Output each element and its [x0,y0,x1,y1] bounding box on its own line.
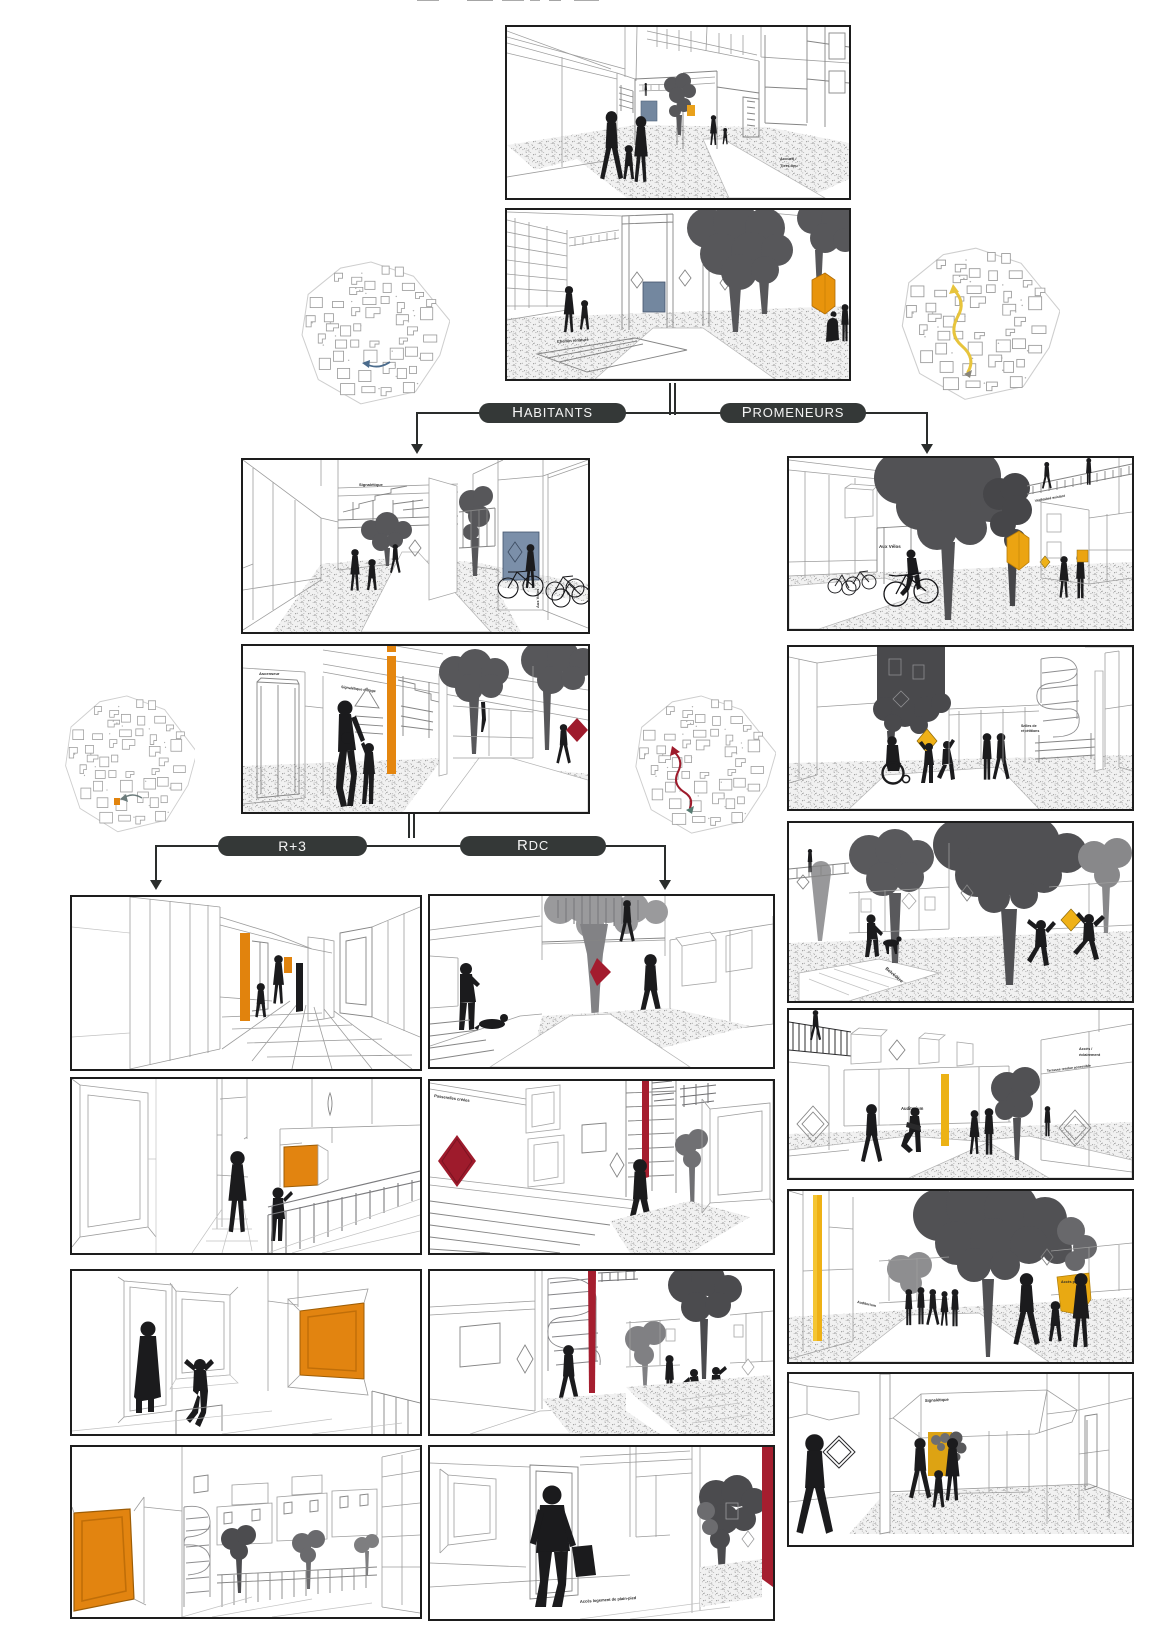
svg-text:Accès logement de plain-pied: Accès logement de plain-pied [580,1595,637,1604]
svg-text:Signalétique: Signalétique [359,482,384,487]
svg-text:Signalétique: Signalétique [925,1397,950,1403]
svg-text:répétitions: répétitions [1021,729,1039,733]
svg-text:Accès /: Accès / [1079,1047,1093,1051]
svg-text:éclairement: éclairement [1079,1053,1101,1057]
svg-text:Aux Vélos: Aux Vélos [535,588,540,608]
svg-text:Accueil /: Accueil / [780,156,797,161]
svg-text:Auditorium: Auditorium [857,1300,877,1308]
svg-text:Végétalisé existant: Végétalisé existant [1034,494,1066,503]
svg-text:Tiers-lieu: Tiers-lieu [780,163,798,168]
svg-text:Terrasse rendue accessible: Terrasse rendue accessible [1047,1064,1092,1073]
svg-text:Signalétique d'étage: Signalétique d'étage [341,685,376,693]
svg-text:Aux Vélos: Aux Vélos [879,544,901,549]
svg-text:Salles de: Salles de [1021,724,1037,728]
svg-text:Ascenseur: Ascenseur [259,671,280,676]
